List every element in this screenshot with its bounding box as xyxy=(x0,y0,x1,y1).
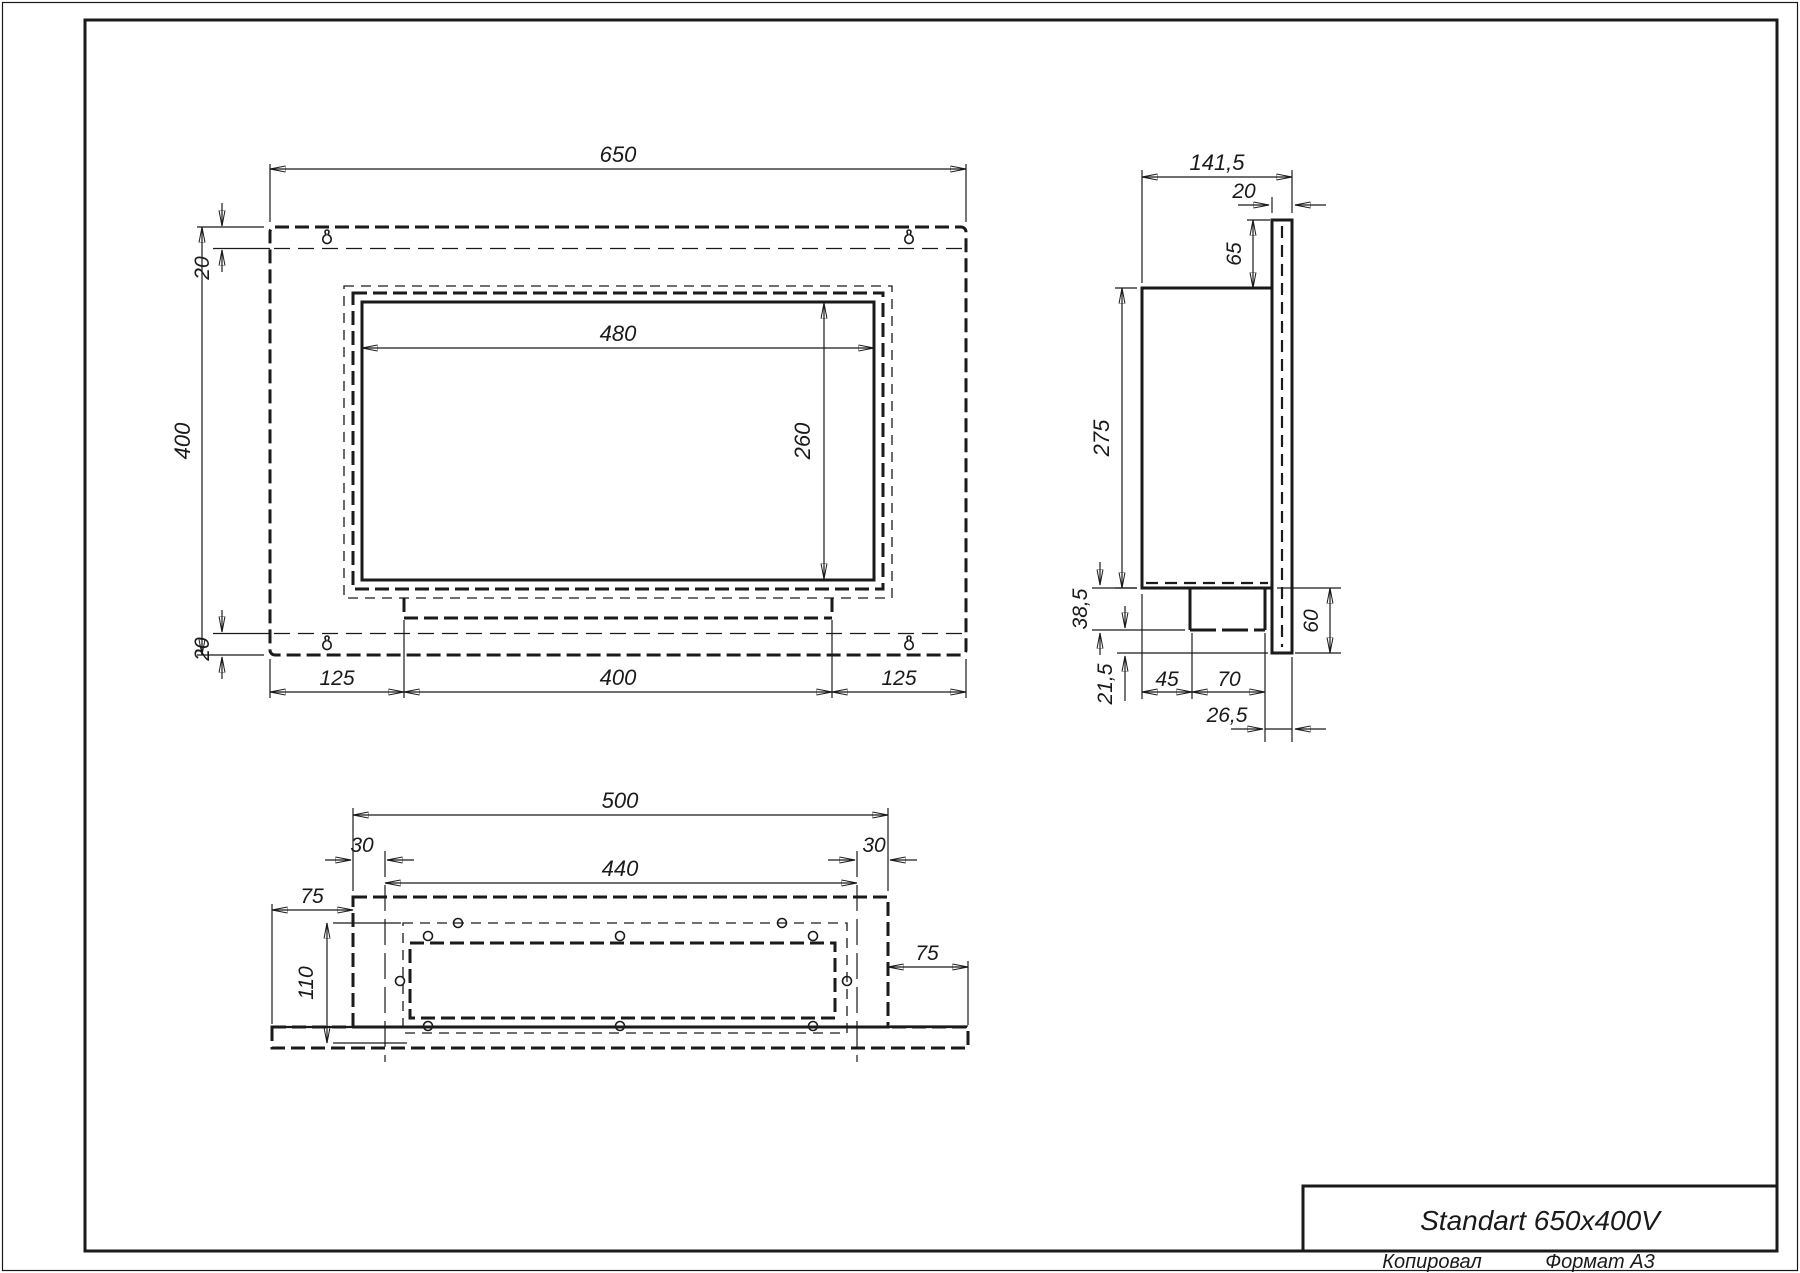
dim-500: 500 xyxy=(602,788,639,813)
dim-480: 480 xyxy=(600,321,637,346)
copied-label: Копировал xyxy=(1382,1251,1481,1273)
dim-260: 260 xyxy=(790,422,815,460)
keyhole-icon xyxy=(323,230,331,244)
dim-141-5: 141,5 xyxy=(1189,150,1245,175)
dim-400-height: 400 xyxy=(170,422,195,459)
burner-opening-hidden xyxy=(410,943,835,1018)
bottom-view-dimensions: 500 30 30 440 75 75 110 xyxy=(272,788,968,1043)
inner-frame xyxy=(85,20,1777,1251)
drawing-title: Standart 650x400V xyxy=(1420,1205,1662,1236)
dim-75-left: 75 xyxy=(300,885,324,908)
mounting-plate-outline xyxy=(270,227,966,655)
sheet-frame xyxy=(3,3,1798,1271)
hole xyxy=(616,932,625,941)
dim-38-5: 38,5 xyxy=(1069,588,1092,629)
dim-70: 70 xyxy=(1217,668,1241,691)
dim-400-tray: 400 xyxy=(600,665,637,690)
title-block: Standart 650x400V Копировал Формат А3 xyxy=(1303,1186,1777,1273)
front-view-dimensions: 650 400 20 20 480 260 125 xyxy=(170,142,966,698)
dim-125-right: 125 xyxy=(881,667,916,690)
hole xyxy=(809,932,818,941)
dim-20-top: 20 xyxy=(191,256,214,281)
dim-20-flange: 20 xyxy=(1231,180,1256,203)
dim-110: 110 xyxy=(295,966,318,1000)
dim-26-5: 26,5 xyxy=(1206,704,1248,727)
dim-30-left: 30 xyxy=(350,834,374,857)
page: { "title_block": { "title": "Standart 65… xyxy=(0,0,1800,1273)
hole xyxy=(424,932,433,941)
dim-275: 275 xyxy=(1089,419,1114,457)
keyhole-icon xyxy=(323,636,331,650)
dim-60: 60 xyxy=(1300,609,1323,633)
bottom-view: 500 30 30 440 75 75 110 xyxy=(272,788,968,1062)
side-view: 141,5 20 65 275 38,5 21,5 xyxy=(1069,150,1341,742)
fixing-holes xyxy=(396,919,852,1031)
dim-21-5: 21,5 xyxy=(1094,663,1117,705)
dim-20-bottom: 20 xyxy=(191,637,214,662)
dim-75-right: 75 xyxy=(915,942,939,965)
format-label: Формат А3 xyxy=(1545,1251,1654,1273)
dim-125-left: 125 xyxy=(319,667,354,690)
hole xyxy=(396,977,405,986)
keyhole-icon xyxy=(905,636,913,650)
dim-440: 440 xyxy=(602,856,639,881)
body-bottom-outline xyxy=(353,897,888,1027)
front-view: 650 400 20 20 480 260 125 xyxy=(170,142,966,698)
dim-650: 650 xyxy=(600,142,637,167)
dim-65: 65 xyxy=(1223,242,1246,266)
drawing-canvas: 650 400 20 20 480 260 125 xyxy=(0,0,1800,1273)
keyhole-icon xyxy=(905,230,913,244)
dim-45: 45 xyxy=(1155,668,1179,691)
dim-30-right: 30 xyxy=(862,834,886,857)
body-outline xyxy=(1142,288,1272,588)
paper-border xyxy=(3,3,1798,1271)
side-view-dimensions: 141,5 20 65 275 38,5 21,5 xyxy=(1069,150,1341,742)
